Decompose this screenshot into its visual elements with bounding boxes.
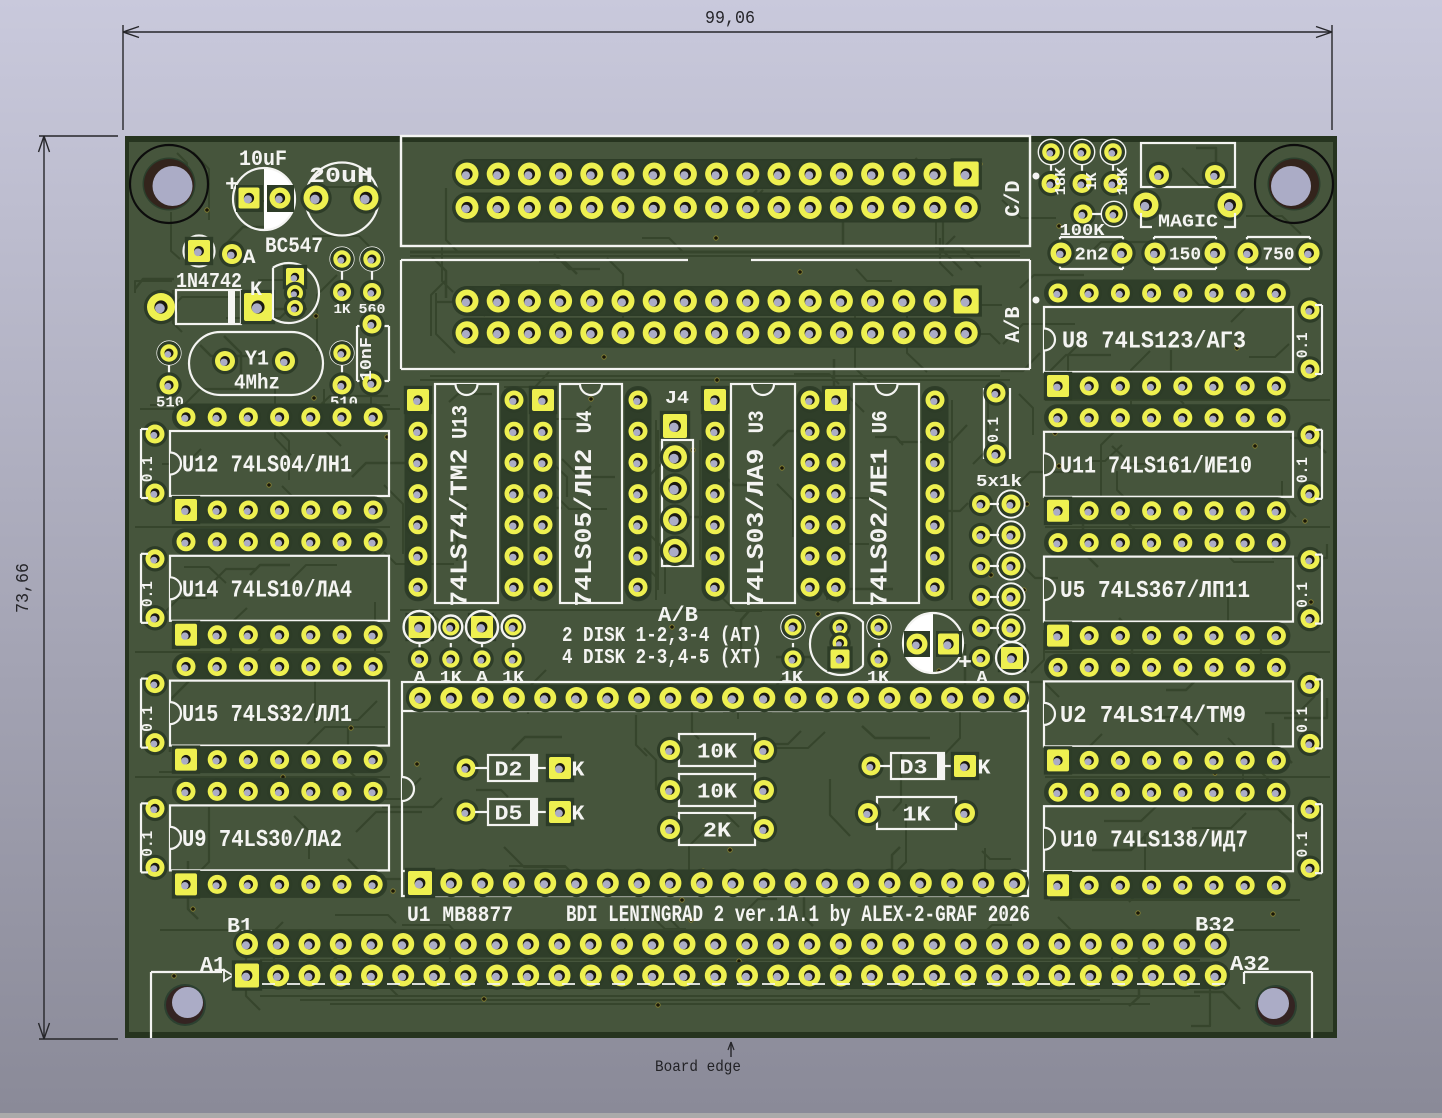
svg-text:2K: 2K bbox=[703, 821, 731, 844]
svg-text:U5 74LS367/ЛП11: U5 74LS367/ЛП11 bbox=[1060, 578, 1250, 605]
svg-text:U6: U6 bbox=[869, 410, 894, 433]
svg-text:D5: D5 bbox=[495, 804, 523, 827]
svg-text:A1: A1 bbox=[200, 955, 226, 978]
svg-text:0.1: 0.1 bbox=[139, 831, 157, 857]
svg-text:74LS74/ТМ2: 74LS74/ТМ2 bbox=[448, 449, 475, 607]
svg-text:A/B: A/B bbox=[1003, 306, 1026, 342]
svg-text:74LS03/ЛА9: 74LS03/ЛА9 bbox=[744, 449, 771, 607]
svg-text:4Mhz: 4Mhz bbox=[234, 373, 280, 396]
svg-text:Y1: Y1 bbox=[245, 349, 269, 372]
svg-text:1K: 1K bbox=[334, 302, 352, 318]
svg-text:1K: 1K bbox=[1084, 172, 1101, 190]
svg-text:10K: 10K bbox=[697, 782, 737, 805]
svg-text:U15 74LS32/ЛЛ1: U15 74LS32/ЛЛ1 bbox=[182, 702, 352, 729]
svg-text:73,66: 73,66 bbox=[14, 563, 34, 613]
svg-text:0.1: 0.1 bbox=[1294, 332, 1312, 358]
svg-text:J4: J4 bbox=[665, 389, 689, 409]
svg-text:0.1: 0.1 bbox=[1294, 707, 1312, 733]
svg-text:0.1: 0.1 bbox=[139, 706, 157, 732]
svg-text:U10 74LS138/ИД7: U10 74LS138/ИД7 bbox=[1060, 828, 1248, 855]
svg-text:0.1: 0.1 bbox=[139, 456, 157, 482]
svg-text:BDI LENINGRAD 2 ver.1A.1 by AL: BDI LENINGRAD 2 ver.1A.1 by ALEX-2-GRAF … bbox=[566, 902, 1030, 928]
svg-text:0.1: 0.1 bbox=[985, 417, 1003, 443]
svg-text:5x1k: 5x1k bbox=[976, 473, 1022, 492]
svg-text:2n2: 2n2 bbox=[1075, 246, 1109, 266]
svg-text:Board edge: Board edge bbox=[655, 1058, 741, 1076]
svg-text:K: K bbox=[572, 760, 585, 783]
svg-text:U3: U3 bbox=[745, 410, 770, 433]
svg-text:0.1: 0.1 bbox=[139, 581, 157, 607]
svg-text:99,06: 99,06 bbox=[705, 9, 755, 29]
svg-text:0.1: 0.1 bbox=[1294, 457, 1312, 483]
svg-text:K: K bbox=[250, 279, 262, 302]
svg-text:C/D: C/D bbox=[1003, 181, 1026, 217]
svg-text:U1 MB8877: U1 MB8877 bbox=[407, 903, 513, 928]
svg-text:18K: 18K bbox=[1115, 167, 1132, 195]
svg-text:74LS02/ЛЕ1: 74LS02/ЛЕ1 bbox=[868, 449, 895, 607]
svg-text:A32: A32 bbox=[1230, 954, 1270, 977]
svg-text:U13: U13 bbox=[449, 405, 474, 439]
svg-text:18K: 18K bbox=[1053, 167, 1070, 195]
svg-text:A: A bbox=[243, 247, 256, 270]
svg-text:10K: 10K bbox=[697, 742, 737, 765]
svg-text:K: K bbox=[978, 758, 991, 781]
svg-text:100K: 100K bbox=[1060, 222, 1106, 241]
svg-text:BC547: BC547 bbox=[265, 234, 323, 259]
svg-text:U8 74LS123/АГ3: U8 74LS123/АГ3 bbox=[1062, 329, 1246, 356]
svg-text:MAGIC: MAGIC bbox=[1158, 213, 1218, 233]
svg-text:D3: D3 bbox=[900, 758, 928, 781]
svg-text:U2 74LS174/ТМ9: U2 74LS174/ТМ9 bbox=[1060, 703, 1246, 730]
svg-text:750: 750 bbox=[1263, 246, 1295, 266]
svg-text:U4: U4 bbox=[573, 410, 598, 433]
svg-text:D2: D2 bbox=[495, 760, 523, 783]
svg-text:150: 150 bbox=[1169, 246, 1201, 266]
svg-text:U9 74LS30/ЛА2: U9 74LS30/ЛА2 bbox=[182, 827, 342, 854]
svg-text:4 DISK 2-3,4-5 (XT): 4 DISK 2-3,4-5 (XT) bbox=[562, 647, 762, 670]
svg-text:10nF: 10nF bbox=[358, 337, 377, 381]
svg-text:U14 74LS10/ЛА4: U14 74LS10/ЛА4 bbox=[182, 577, 352, 604]
svg-text:2 DISK 1-2,3-4 (AT): 2 DISK 1-2,3-4 (AT) bbox=[562, 625, 762, 648]
svg-text:U11 74LS161/ИЕ10: U11 74LS161/ИЕ10 bbox=[1060, 453, 1252, 480]
svg-text:1K: 1K bbox=[903, 805, 931, 828]
svg-text:0.1: 0.1 bbox=[1294, 582, 1312, 608]
svg-text:0.1: 0.1 bbox=[1294, 832, 1312, 858]
svg-text:K: K bbox=[572, 804, 585, 827]
svg-text:74LS05/ЛН2: 74LS05/ЛН2 bbox=[572, 449, 599, 607]
svg-text:+: + bbox=[958, 651, 972, 676]
svg-text:U12 74LS04/ЛН1: U12 74LS04/ЛН1 bbox=[182, 453, 352, 480]
